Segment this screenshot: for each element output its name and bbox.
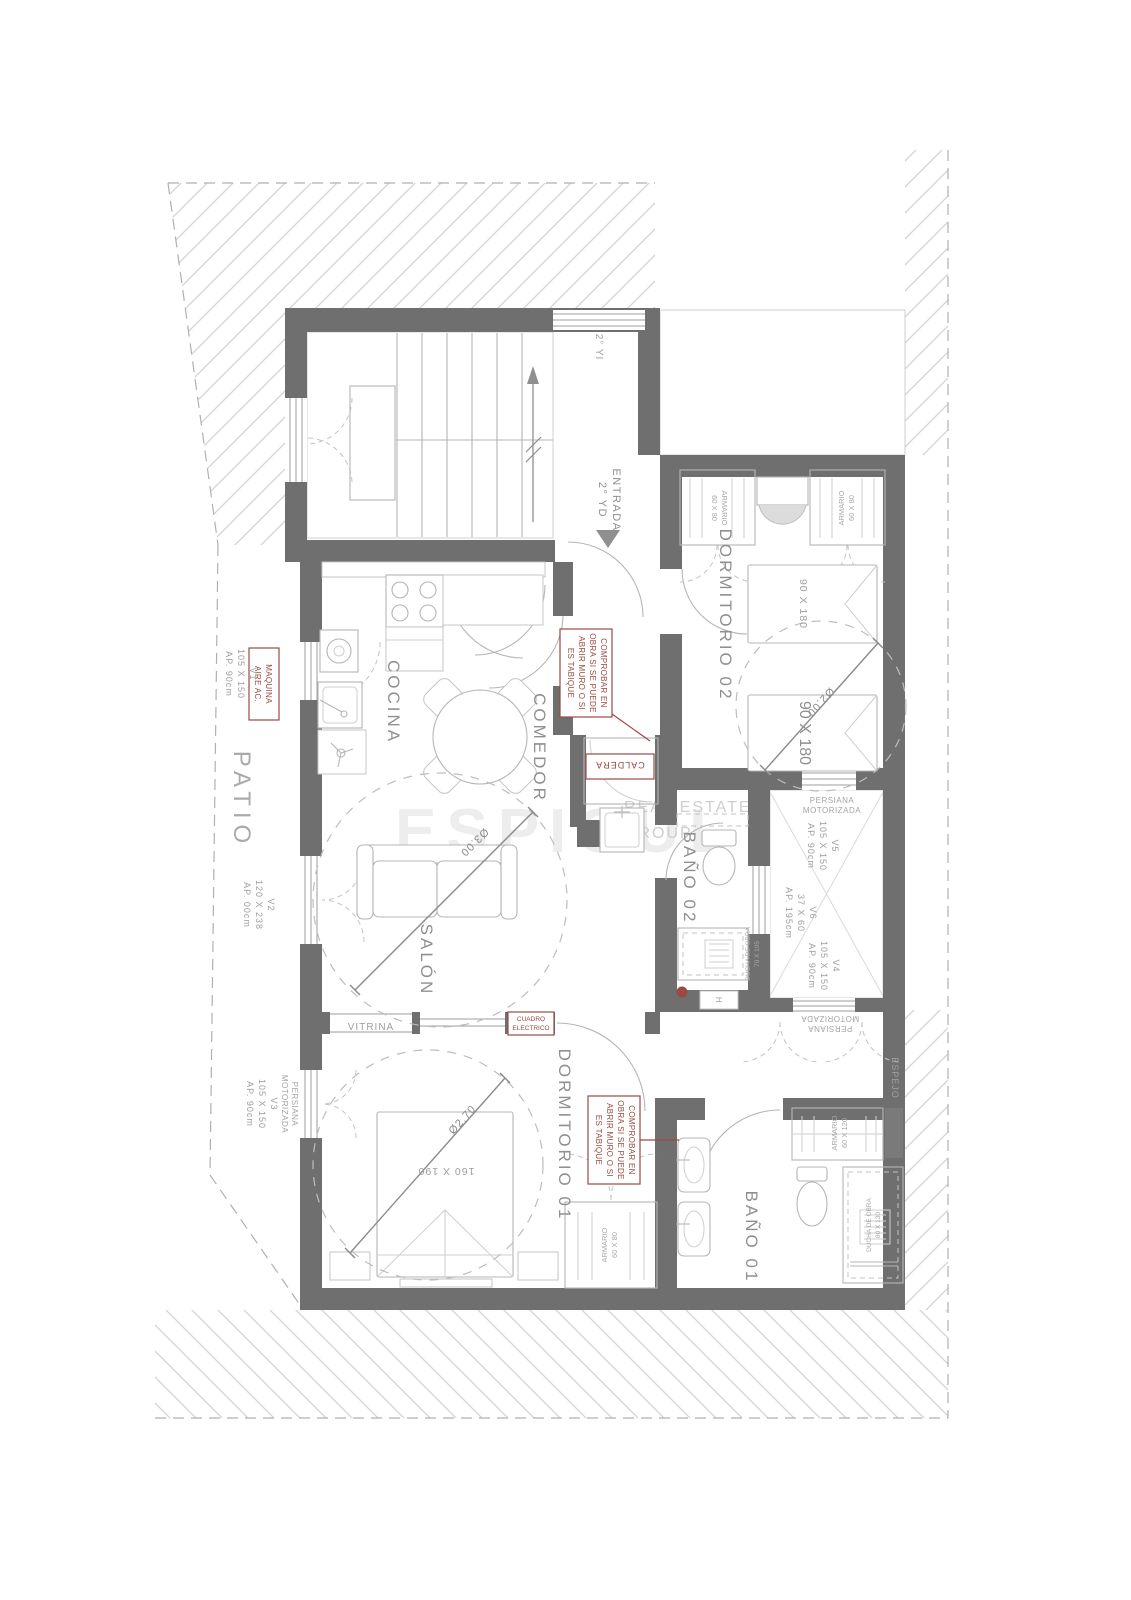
label-stair-unit: 2° YI bbox=[593, 334, 604, 361]
svg-text:ELECTRICO: ELECTRICO bbox=[512, 1025, 549, 1032]
svg-text:ARMARIO: ARMARIO bbox=[600, 1227, 609, 1262]
svg-text:AP. 90cm: AP. 90cm bbox=[224, 651, 234, 697]
door-bath1 bbox=[700, 1110, 780, 1190]
label-bedroom1: DORMITORIO 01 bbox=[555, 1049, 574, 1222]
toilet bbox=[702, 830, 736, 846]
label-bath2: BAÑO 02 bbox=[680, 832, 699, 925]
svg-text:70 X 105: 70 X 105 bbox=[754, 941, 761, 967]
label-single-bed-2: 90 X 180 bbox=[796, 701, 813, 765]
svg-text:105 X 150: 105 X 150 bbox=[257, 1079, 267, 1129]
label-mirror: ESPEJO bbox=[890, 1057, 900, 1099]
svg-text:MOTORIZADA: MOTORIZADA bbox=[803, 806, 861, 815]
window-v6 bbox=[748, 866, 770, 934]
svg-text:CALDERA: CALDERA bbox=[595, 760, 645, 770]
window-top-stair bbox=[553, 310, 645, 330]
label-towel: H bbox=[714, 997, 723, 1003]
svg-text:60 X 80: 60 X 80 bbox=[710, 495, 719, 521]
dining-table bbox=[433, 690, 527, 784]
hatch-top-right bbox=[905, 150, 948, 455]
svg-text:ES TABIQUE: ES TABIQUE bbox=[566, 648, 575, 698]
shower bbox=[678, 928, 748, 980]
svg-text:105 X 150: 105 X 150 bbox=[236, 649, 246, 699]
svg-text:105 X 150: 105 X 150 bbox=[819, 941, 829, 991]
svg-text:120 X 238: 120 X 238 bbox=[254, 880, 264, 930]
terrace-void-outline bbox=[660, 310, 905, 455]
svg-text:COMPROBAR EN: COMPROBAR EN bbox=[627, 1105, 636, 1174]
svg-text:V1: V1 bbox=[248, 667, 258, 680]
svg-text:37 X 60: 37 X 60 bbox=[796, 894, 806, 932]
svg-text:ES TABIQUE: ES TABIQUE bbox=[594, 1115, 603, 1165]
hatch-bottom bbox=[155, 1310, 948, 1418]
shower-drain bbox=[705, 940, 733, 968]
window-stairwell bbox=[285, 398, 352, 482]
label-wardrobe-b2-left: ARMARIO 60 X 80 bbox=[710, 490, 729, 525]
nightstand bbox=[330, 1252, 370, 1280]
svg-text:ABRIR MURO O SI: ABRIR MURO O SI bbox=[605, 1103, 614, 1177]
label-entrance: ENTRADA 2° YD bbox=[596, 468, 622, 531]
svg-text:PERSIANA: PERSIANA bbox=[808, 1024, 853, 1033]
svg-text:ARMARIO: ARMARIO bbox=[830, 1115, 839, 1150]
label-v4: V4 105 X 150 AP. 90cm bbox=[807, 941, 841, 991]
note-check-wall-2: COMPROBAR EN OBRA SI SE PUEDE ABRIR MURO… bbox=[588, 1096, 640, 1184]
label-v6: V6 37 X 60 AP. 195cm bbox=[784, 887, 818, 939]
label-bath1: BAÑO 01 bbox=[742, 1191, 761, 1284]
label-v2: V2 120 X 238 AP. 00cm bbox=[242, 880, 276, 930]
single-bed bbox=[748, 565, 877, 643]
toilet bbox=[797, 1167, 827, 1181]
label-v5-shutter: PERSIANA MOTORIZADA bbox=[803, 796, 861, 815]
svg-text:ARMARIO: ARMARIO bbox=[720, 490, 729, 525]
svg-text:V2: V2 bbox=[266, 898, 276, 911]
svg-text:V5: V5 bbox=[830, 839, 840, 852]
door-entry-hall bbox=[568, 542, 643, 617]
svg-text:2° YD: 2° YD bbox=[596, 482, 608, 518]
label-vitrine: VITRINA bbox=[348, 1022, 394, 1033]
dining-set bbox=[420, 675, 539, 796]
svg-text:ENTRADA: ENTRADA bbox=[610, 468, 622, 531]
label-wardrobe-b1: ARMARIO 60 X 80 bbox=[600, 1227, 619, 1262]
window-v2 bbox=[300, 856, 364, 944]
stairwell-outline bbox=[307, 332, 553, 538]
svg-text:V4: V4 bbox=[831, 959, 841, 972]
svg-text:PERSIANA: PERSIANA bbox=[290, 1082, 299, 1127]
svg-text:MOTORIZADA: MOTORIZADA bbox=[280, 1075, 289, 1133]
svg-text:DUCHA DE OBRA: DUCHA DE OBRA bbox=[745, 926, 752, 980]
svg-text:AP. 90cm: AP. 90cm bbox=[807, 943, 817, 989]
floor-plan-page: ESPIGUL REAL ESTATE GROUP bbox=[0, 0, 1131, 1600]
svg-text:CUADRO: CUADRO bbox=[517, 1016, 545, 1023]
hatch-right-lower bbox=[905, 1010, 948, 1310]
door-bedroom2 bbox=[682, 569, 747, 634]
svg-text:COMPROBAR EN: COMPROBAR EN bbox=[599, 638, 608, 707]
washbasin bbox=[678, 1138, 710, 1192]
svg-text:OBRA SI SE PUEDE: OBRA SI SE PUEDE bbox=[616, 1100, 625, 1180]
note-electrical-panel: CUADRO ELECTRICO bbox=[508, 1012, 554, 1035]
label-wardrobe-b2-right: ARMARIO 60 X 80 bbox=[837, 490, 856, 525]
svg-text:60 X 80: 60 X 80 bbox=[847, 495, 856, 521]
svg-text:V6: V6 bbox=[808, 906, 818, 919]
label-wardrobe-bath1: ARMARIO 60 X 120 bbox=[830, 1115, 849, 1150]
site-boundary-left-diag bbox=[210, 1175, 300, 1305]
bath1-fittings bbox=[676, 1108, 903, 1283]
label-v3: V3 105 X 150 AP. 90cm bbox=[245, 1079, 279, 1129]
label-patio: PATIO bbox=[228, 751, 255, 849]
label-v5: V5 105 X 150 AP. 90cm bbox=[806, 821, 840, 871]
svg-text:AP. 195cm: AP. 195cm bbox=[784, 887, 794, 939]
label-double-bed: 160 X 190 bbox=[418, 1165, 475, 1177]
svg-text:105 X 150: 105 X 150 bbox=[818, 821, 828, 871]
floor-plan-drawing: ESPIGUL REAL ESTATE GROUP bbox=[0, 0, 1131, 1600]
nightstand bbox=[518, 1252, 558, 1280]
mirror-panel bbox=[885, 1108, 903, 1158]
niche bbox=[757, 477, 808, 505]
label-v3-shutter: PERSIANA MOTORIZADA bbox=[280, 1075, 299, 1133]
svg-text:80 X 130: 80 X 130 bbox=[875, 1212, 882, 1238]
entrance-arrow-icon bbox=[596, 530, 620, 548]
svg-text:AP. 00cm: AP. 00cm bbox=[242, 882, 252, 928]
svg-text:V3: V3 bbox=[269, 1097, 279, 1110]
svg-text:OBRA SI SE PUEDE: OBRA SI SE PUEDE bbox=[588, 633, 597, 713]
label-bedroom2: DORMITORIO 02 bbox=[716, 529, 735, 702]
svg-text:ABRIR MURO O SI: ABRIR MURO O SI bbox=[577, 636, 586, 710]
label-v4-shutter: PERSIANA MOTORIZADA bbox=[801, 1014, 859, 1033]
window-v4 bbox=[793, 998, 855, 1012]
washer bbox=[320, 630, 358, 672]
svg-text:60 X 120: 60 X 120 bbox=[840, 1118, 849, 1148]
note-ac-unit: MAQUINA AIRE AC. bbox=[249, 648, 279, 720]
svg-text:AP. 90cm: AP. 90cm bbox=[245, 1081, 255, 1127]
staircase bbox=[350, 333, 553, 537]
stair-direction-arrow bbox=[526, 366, 541, 522]
svg-text:AP. 90cm: AP. 90cm bbox=[806, 823, 816, 869]
svg-text:DUCHA DE OBRA: DUCHA DE OBRA bbox=[866, 1197, 873, 1251]
kitchen-sink bbox=[318, 682, 362, 728]
window-v3 bbox=[300, 1070, 356, 1138]
svg-text:PERSIANA: PERSIANA bbox=[810, 796, 855, 805]
washbasin bbox=[678, 1202, 710, 1256]
red-marker-dot bbox=[677, 987, 688, 998]
svg-text:MAQUINA: MAQUINA bbox=[264, 664, 273, 704]
note-check-wall-1: COMPROBAR EN OBRA SI SE PUEDE ABRIR MURO… bbox=[560, 629, 612, 717]
label-single-bed-1: 90 X 180 bbox=[797, 579, 809, 629]
svg-text:60 X 80: 60 X 80 bbox=[610, 1232, 619, 1258]
svg-text:MOTORIZADA: MOTORIZADA bbox=[801, 1014, 859, 1023]
label-dining: COMEDOR bbox=[530, 693, 549, 803]
label-living: SALÓN bbox=[417, 924, 436, 997]
kitchen-counter bbox=[443, 575, 543, 625]
door-dining bbox=[489, 616, 563, 688]
label-kitchen: COCINA bbox=[384, 660, 403, 744]
site-boundary-left bbox=[210, 545, 218, 1175]
living-low-window bbox=[420, 1012, 505, 1034]
note-boiler: CALDERA bbox=[586, 754, 654, 779]
hatch-top-left bbox=[168, 183, 655, 545]
bed-bench bbox=[400, 1279, 492, 1287]
svg-text:ARMARIO: ARMARIO bbox=[837, 490, 846, 525]
